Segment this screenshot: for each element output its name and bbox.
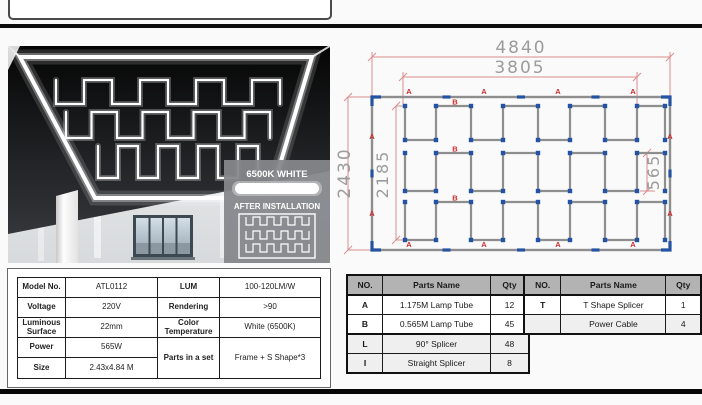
parts-table-main: NO. Parts Name Qty A 1.175M Lamp Tube 12… <box>346 274 530 374</box>
dim-segment-height: 565 <box>644 154 663 191</box>
frame-tube-label: A <box>406 87 412 96</box>
splicer-mark <box>403 138 407 142</box>
splicer-mark <box>568 238 572 242</box>
table-row: Power Cable 4 <box>524 315 701 335</box>
splicer-mark <box>663 151 667 155</box>
part-no: A <box>347 295 383 315</box>
after-installation-label: AFTER INSTALLATION <box>234 202 321 211</box>
splicer-mark <box>501 151 505 155</box>
col-header: Parts Name <box>561 275 666 295</box>
splicer-mark <box>536 200 540 204</box>
wave-tube-run <box>405 202 665 240</box>
frame-tube-label: A <box>630 240 636 249</box>
frame-outline <box>372 97 670 250</box>
col-header: NO. <box>347 275 383 295</box>
part-name: T Shape Splicer <box>561 295 666 315</box>
part-no: B <box>347 315 383 335</box>
spec-label: Power <box>18 338 66 358</box>
table-row: T T Shape Splicer 1 <box>524 295 701 315</box>
spec-label: Rendering <box>158 298 220 318</box>
photo-overlay-panel: 6500K WHITE AFTER INSTALLATION <box>224 160 330 263</box>
window <box>131 215 195 260</box>
wave-tube-run <box>405 153 665 191</box>
spec-value: ATL0112 <box>66 278 158 298</box>
splicer-mark <box>568 151 572 155</box>
splicer-mark <box>536 189 540 193</box>
splicer-mark <box>536 151 540 155</box>
spec-value: 565W <box>66 338 158 358</box>
splicer-mark <box>469 189 473 193</box>
splicer-mark <box>501 189 505 193</box>
splicer-mark <box>603 189 607 193</box>
wave-tube-run <box>405 106 665 140</box>
spec-label: Model No. <box>18 278 66 298</box>
glow-bar <box>235 183 319 194</box>
splicer-mark <box>635 104 639 108</box>
part-qty: 48 <box>491 334 530 354</box>
splicer-mark <box>568 104 572 108</box>
table-row: A 1.175M Lamp Tube 12 <box>347 295 529 315</box>
splicer-mark <box>403 151 407 155</box>
splicer-mark <box>434 189 438 193</box>
spec-table: Model No. ATL0112 LUM 100-120LM/W Voltag… <box>17 277 321 379</box>
splicer-mark <box>501 104 505 108</box>
splicer-mark <box>469 104 473 108</box>
splicer-mark <box>403 189 407 193</box>
spec-label: LUM <box>158 278 220 298</box>
wall-pillar <box>56 190 78 263</box>
table-row: L 90° Splicer 48 <box>347 334 529 354</box>
splicer-mark <box>635 151 639 155</box>
frame-corner-splicers <box>372 97 670 250</box>
wave-tube-label: B <box>452 98 458 107</box>
col-header: NO. <box>524 275 561 295</box>
frame-straight-splicers <box>372 97 670 250</box>
spec-label: Luminous Surface <box>18 318 66 338</box>
splicer-mark <box>501 238 505 242</box>
splicer-mark <box>469 151 473 155</box>
top-divider-bar <box>0 24 702 28</box>
splicer-mark <box>434 200 438 204</box>
splicer-mark <box>568 138 572 142</box>
splicer-mark <box>663 189 667 193</box>
col-header: Qty <box>666 275 701 295</box>
part-name: 1.175M Lamp Tube <box>383 295 491 315</box>
splicer-mark <box>603 104 607 108</box>
spec-value: >90 <box>220 298 320 318</box>
splicer-mark <box>469 138 473 142</box>
s-shape-wave-pattern <box>403 104 667 242</box>
product-photo: 6500K WHITE AFTER INSTALLATION <box>8 46 330 263</box>
splicer-mark <box>469 200 473 204</box>
table-row: I Straight Splicer 8 <box>347 354 529 374</box>
spec-label: Color Temperature <box>158 318 220 338</box>
splicer-mark <box>635 189 639 193</box>
part-qty: 8 <box>491 354 530 374</box>
frame-tube-label: A <box>667 132 673 141</box>
spec-value: Frame + S Shape*3 <box>220 338 320 378</box>
splicer-mark <box>536 104 540 108</box>
part-letter-labels: BBBAAAAAAAAAAAA <box>369 87 673 249</box>
spec-label: Size <box>18 358 66 378</box>
part-name: Straight Splicer <box>383 354 491 374</box>
frame-tube-label: A <box>369 209 375 218</box>
splicer-mark <box>635 138 639 142</box>
splicer-mark <box>603 200 607 204</box>
frame-tube-label: A <box>406 240 412 249</box>
spec-value: White (6500K) <box>220 318 320 338</box>
dim-inner-height: 2185 <box>373 150 392 199</box>
splicer-mark <box>434 151 438 155</box>
splicer-mark <box>663 200 667 204</box>
splicer-mark <box>403 200 407 204</box>
splicer-mark <box>501 200 505 204</box>
frame-tube-label: A <box>555 87 561 96</box>
wave-tube-label: B <box>452 145 458 154</box>
bottom-divider-bar <box>0 389 702 394</box>
part-name: 90° Splicer <box>383 334 491 354</box>
splicer-mark <box>635 200 639 204</box>
table-row: B 0.565M Lamp Tube 45 <box>347 315 529 335</box>
splicer-mark <box>501 138 505 142</box>
frame-tube-label: A <box>667 209 673 218</box>
cropped-box-above <box>8 0 332 20</box>
frame-tube-label: A <box>481 87 487 96</box>
dim-outer-width: 4840 <box>495 40 546 58</box>
part-name: Power Cable <box>561 315 666 335</box>
parts-table-extra: NO. Parts Name Qty T T Shape Splicer 1 P… <box>523 274 702 335</box>
part-qty: 4 <box>666 315 701 335</box>
spec-value: 2.43x4.84 M <box>66 358 158 378</box>
part-no <box>524 315 561 335</box>
splicer-mark <box>568 189 572 193</box>
frame-tube-label: A <box>630 87 636 96</box>
splicer-mark <box>603 151 607 155</box>
splicer-mark <box>434 238 438 242</box>
dim-outer-height: 2430 <box>335 147 355 198</box>
part-qty: 1 <box>666 295 701 315</box>
dimension-diagram: 4840 3805 2430 2185 565 BBBAAAAAAAAAAAA <box>335 40 702 268</box>
frame-tube-label: A <box>481 240 487 249</box>
splicer-mark <box>603 238 607 242</box>
splicer-mark <box>536 238 540 242</box>
spec-label: Parts in a set <box>158 338 220 378</box>
splicer-mark <box>469 238 473 242</box>
dim-inner-width: 3805 <box>494 58 545 78</box>
spec-value: 220V <box>66 298 158 318</box>
splicer-mark <box>663 238 667 242</box>
frame-tube-label: A <box>369 132 375 141</box>
spec-label: Voltage <box>18 298 66 318</box>
frame-tube-label: A <box>555 240 561 249</box>
wave-tube-label: B <box>452 194 458 203</box>
splicer-mark <box>536 138 540 142</box>
splicer-mark <box>403 104 407 108</box>
splicer-mark <box>568 200 572 204</box>
spec-value: 100-120LM/W <box>220 278 320 298</box>
part-no: T <box>524 295 561 315</box>
splicer-mark <box>603 138 607 142</box>
splicer-mark <box>434 104 438 108</box>
part-no: L <box>347 334 383 354</box>
splicer-mark <box>663 104 667 108</box>
color-temp-label: 6500K WHITE <box>246 169 307 180</box>
col-header: Parts Name <box>383 275 491 295</box>
spec-value: 22mm <box>66 318 158 338</box>
splicer-mark <box>434 138 438 142</box>
part-no: I <box>347 354 383 374</box>
part-name: 0.565M Lamp Tube <box>383 315 491 335</box>
spec-card: Model No. ATL0112 LUM 100-120LM/W Voltag… <box>7 268 331 388</box>
